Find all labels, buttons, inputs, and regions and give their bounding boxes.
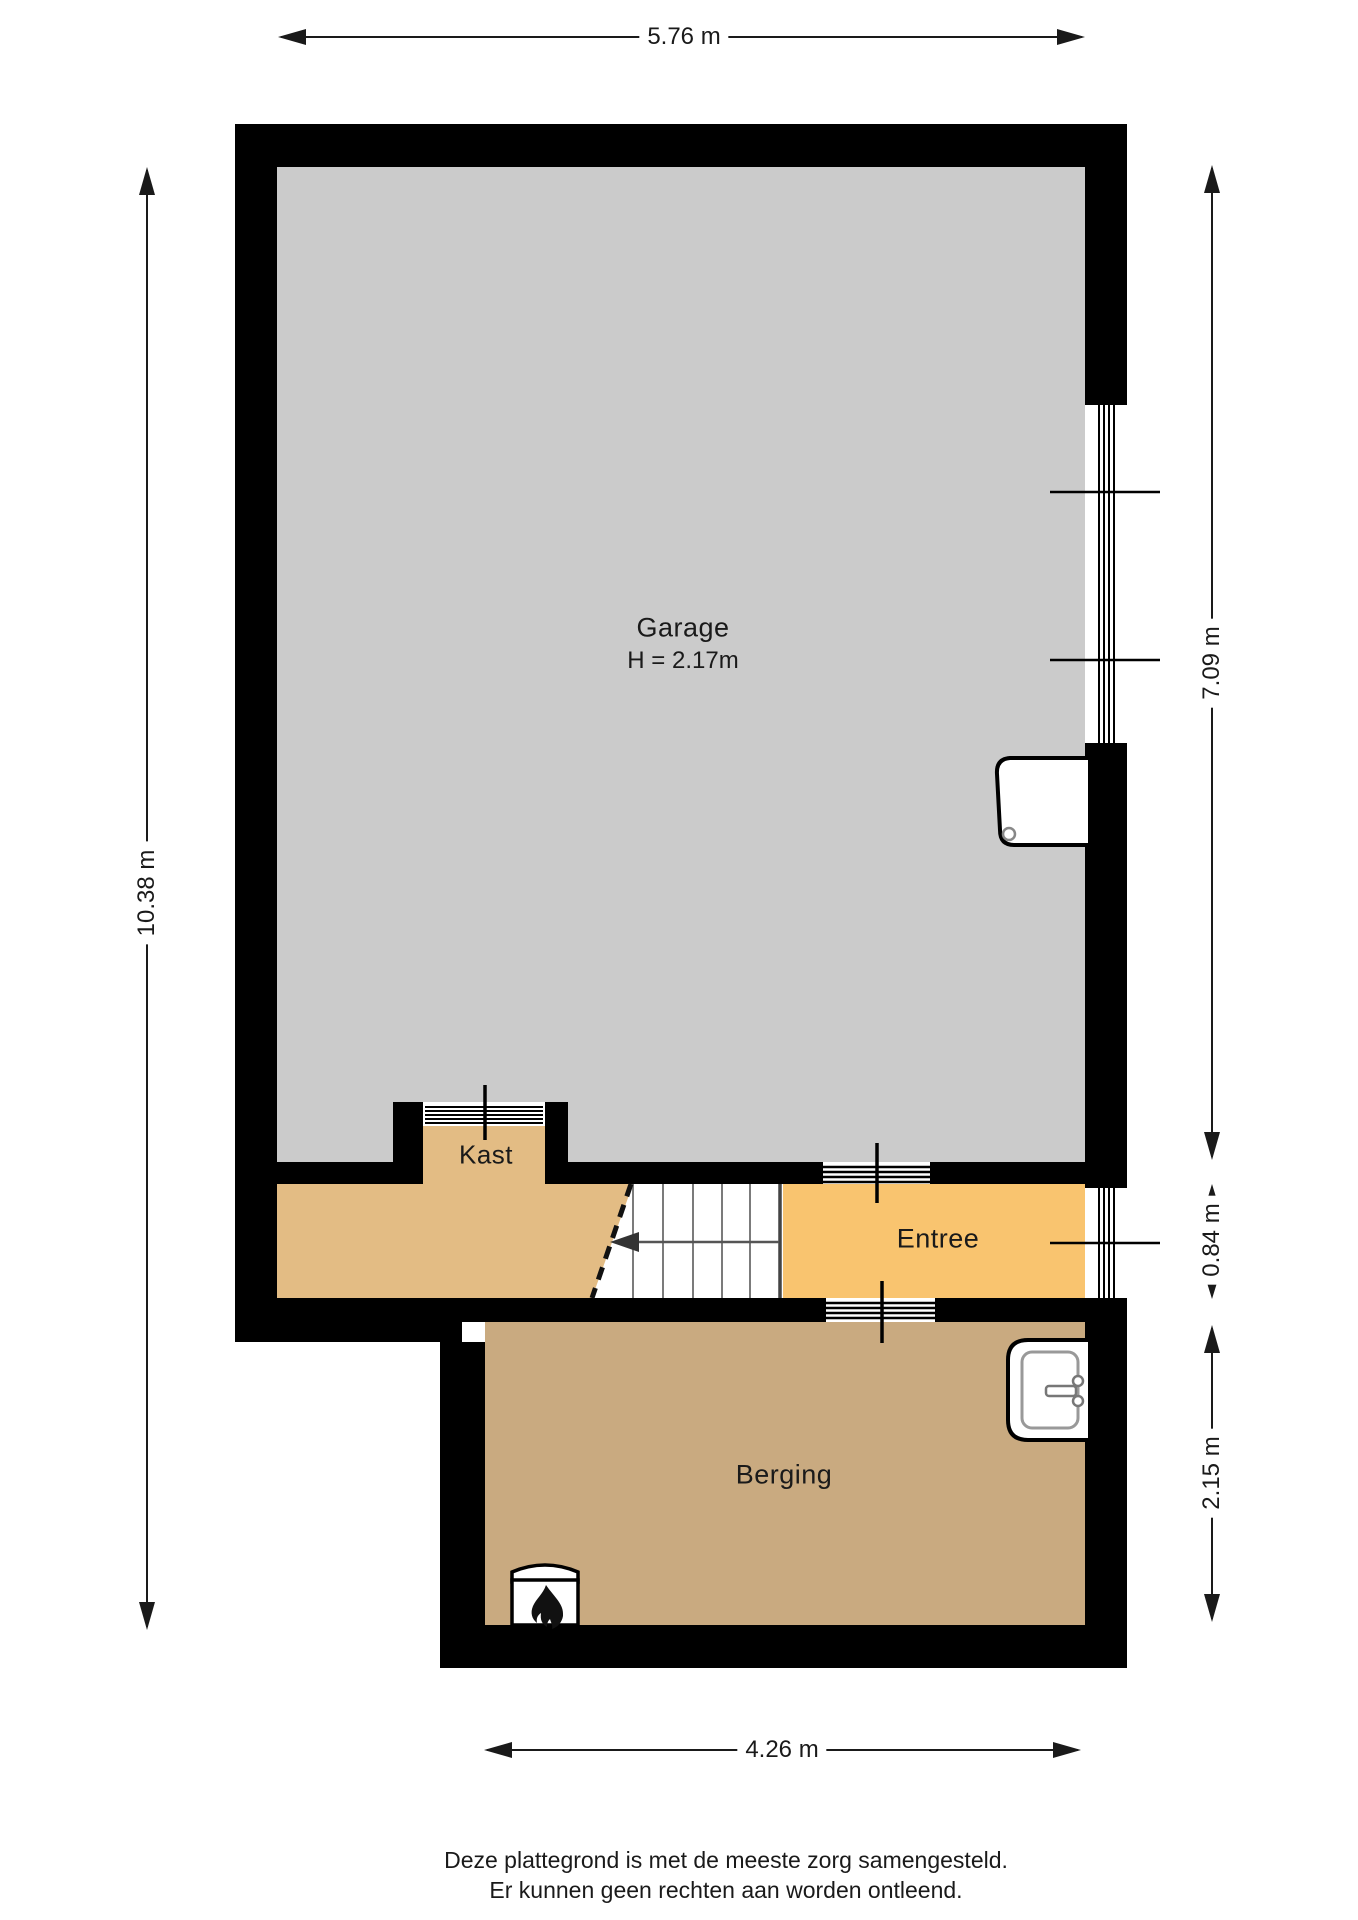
wall-garage-bottom-right [930,1162,1085,1184]
wall-garage-bottom-mid [568,1162,823,1184]
wall-hall-bottom-corner [235,1298,462,1342]
wall-berging-bottom [440,1625,1127,1668]
dim-left-height: 10.38 m [132,842,162,945]
garage-label: Garage [636,613,729,644]
disclaimer-line1: Deze plattegrond is met de meeste zorg s… [444,1845,1008,1875]
dim-top-width: 5.76 m [639,22,728,52]
wall-kast-right [545,1102,568,1184]
wall-left [235,124,277,1342]
dim-bottom-width: 4.26 m [737,1735,826,1765]
wall-garage-bottom-left [277,1162,393,1184]
dim-right-berging: 2.15 m [1197,1428,1227,1517]
dim-right-entree: 0.84 m [1197,1195,1227,1284]
disclaimer: Deze plattegrond is met de meeste zorg s… [444,1845,1008,1905]
garage-height-note: H = 2.17m [627,647,738,675]
wall-entree-bottom-left [462,1298,826,1322]
kast-label: Kast [459,1140,513,1171]
entree-label: Entree [897,1224,980,1255]
wall-right-lower [1085,1298,1127,1668]
wall-right-upper [1085,124,1127,405]
dim-right-garage: 7.09 m [1197,618,1227,707]
berging-label: Berging [736,1460,833,1491]
wall-entree-bottom-right [935,1298,1085,1322]
wall-right-middle [1085,743,1127,1188]
wall-berging-left [440,1342,485,1668]
wall-kast-left [393,1102,423,1184]
floorplan-page: Garage H = 2.17m Kast Entree Berging 5.7… [0,0,1358,1920]
hall-floor [277,1184,783,1298]
disclaimer-line2: Er kunnen geen rechten aan worden ontlee… [444,1875,1008,1905]
wall-top [235,124,1127,167]
